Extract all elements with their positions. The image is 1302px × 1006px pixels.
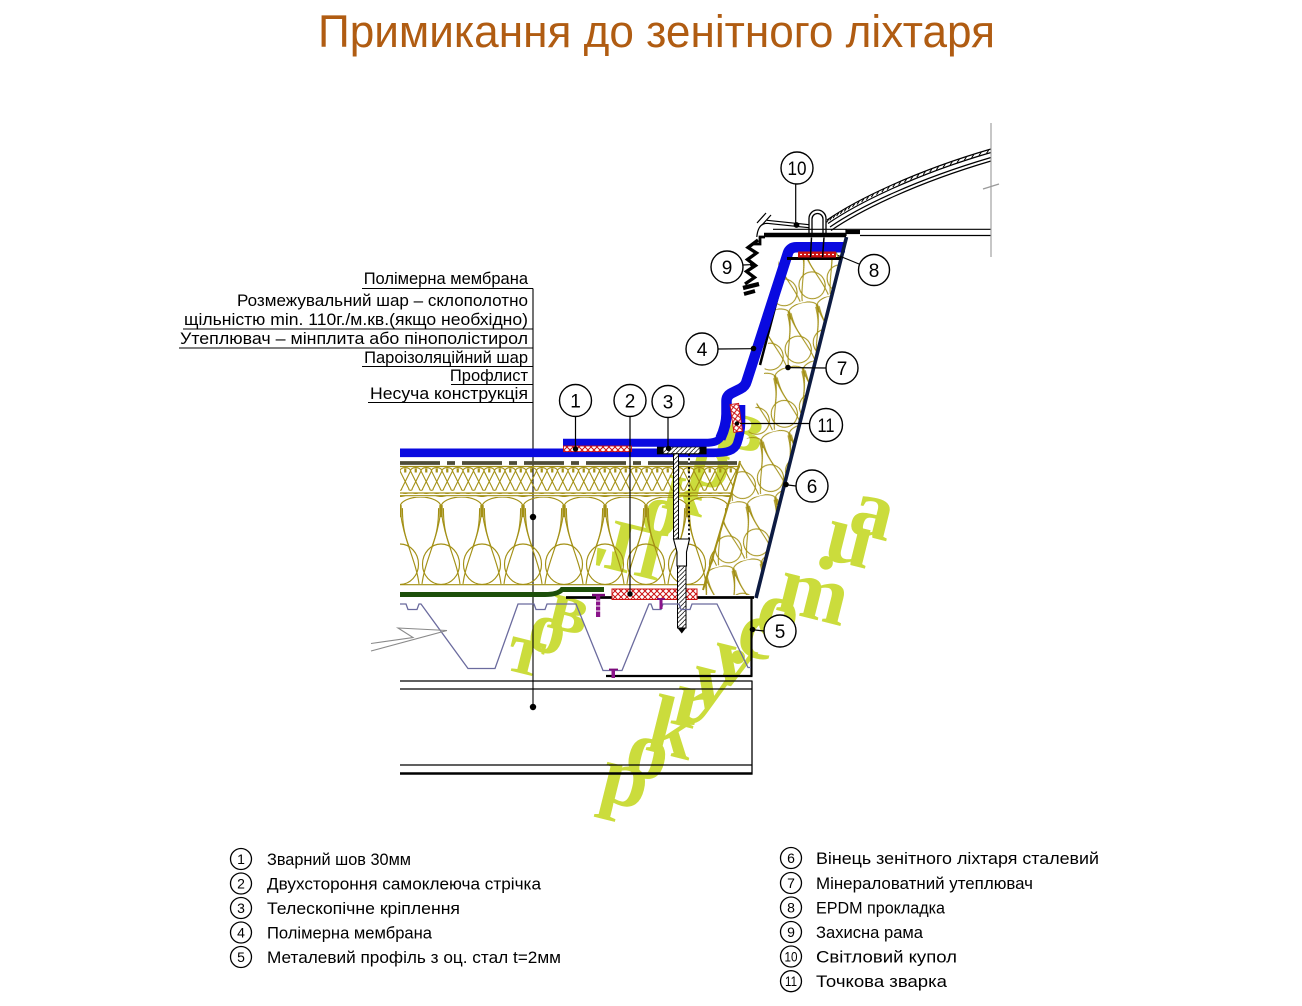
svg-text:Точкова зварка: Точкова зварка: [816, 972, 948, 991]
svg-text:1: 1: [237, 851, 245, 867]
svg-text:Двухстороння самоклеюча стрічк: Двухстороння самоклеюча стрічка: [267, 875, 542, 894]
svg-text:Полімерна мембрана: Полімерна мембрана: [267, 924, 433, 943]
svg-text:5: 5: [775, 622, 786, 643]
svg-text:9: 9: [787, 924, 795, 940]
svg-text:10: 10: [788, 159, 807, 180]
svg-text:Телескопічне кріплення: Телескопічне кріплення: [267, 899, 460, 918]
svg-text:3: 3: [663, 393, 674, 414]
svg-text:3: 3: [237, 900, 245, 916]
svg-text:Утеплювач – мінплита або піноп: Утеплювач – мінплита або пінополістирол: [180, 330, 528, 348]
svg-text:1: 1: [570, 392, 581, 413]
svg-text:11: 11: [818, 416, 835, 437]
svg-text:2: 2: [237, 876, 245, 892]
svg-text:7: 7: [837, 359, 848, 380]
svg-text:Профлист: Профлист: [450, 367, 529, 385]
svg-text:Пароізоляційний шар: Пароізоляційний шар: [364, 349, 528, 367]
svg-text:10: 10: [785, 949, 798, 965]
svg-text:7: 7: [787, 875, 795, 891]
svg-text:Несуча конструкція: Несуча конструкція: [370, 385, 528, 403]
svg-text:EPDM прокладка: EPDM прокладка: [816, 899, 946, 918]
svg-text:Захисна рама: Захисна рама: [816, 923, 924, 942]
svg-text:6: 6: [787, 850, 795, 866]
svg-text:Вінець зенітного ліхтаря стале: Вінець зенітного ліхтаря сталевий: [816, 849, 1099, 868]
svg-text:Мінераловатний утеплювач: Мінераловатний утеплювач: [816, 874, 1033, 893]
svg-text:5: 5: [237, 949, 245, 965]
svg-text:11: 11: [785, 973, 797, 989]
svg-text:6: 6: [807, 477, 818, 498]
svg-text:2: 2: [625, 392, 636, 413]
svg-text:8: 8: [869, 261, 880, 282]
svg-text:Примикання до зенітного ліхтар: Примикання до зенітного ліхтаря: [318, 6, 995, 57]
svg-text:4: 4: [237, 925, 245, 941]
svg-text:Розмежувальний шар – склополот: Розмежувальний шар – склополотно: [237, 292, 528, 310]
svg-text:Зварний шов 30мм: Зварний шов 30мм: [267, 850, 411, 869]
svg-text:9: 9: [722, 258, 733, 279]
svg-text:Металевий профіль з оц. стал t: Металевий профіль з оц. стал t=2мм: [267, 948, 561, 967]
svg-text:щільністю min. 110г./м.кв.(якщ: щільністю min. 110г./м.кв.(якщо необхідн…: [184, 311, 528, 329]
svg-text:8: 8: [787, 900, 795, 916]
svg-text:Світловий купол: Світловий купол: [816, 948, 957, 967]
svg-text:4: 4: [697, 340, 708, 361]
svg-text:Полімерна мембрана: Полімерна мембрана: [364, 270, 529, 288]
